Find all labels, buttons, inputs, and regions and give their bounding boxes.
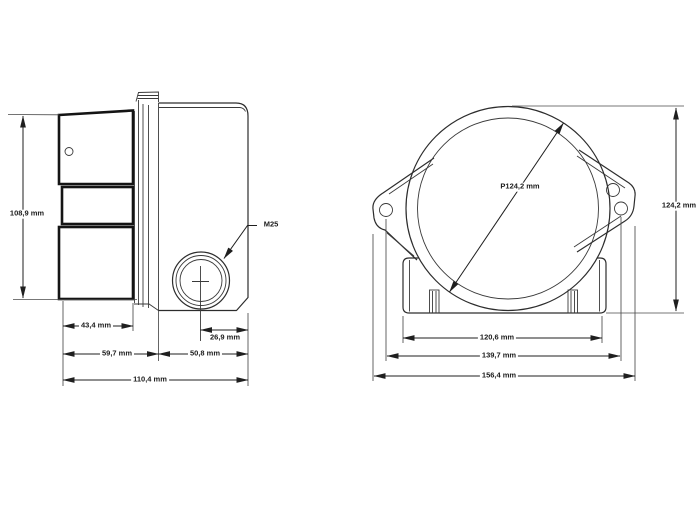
dim-body-depth-label: 50,8 mm [188,350,222,359]
dim-horn-depth-label: 43,4 mm [79,322,113,331]
drawing-canvas [0,0,700,518]
dim-side-height-label: 108,9 mm [8,210,46,219]
neck-bottom-step [134,304,159,311]
dim-mounting-hole-span-label: 139,7 mm [480,352,518,361]
dim-horn-section-depth-label: 59,7 mm [100,350,134,359]
dim-gland-offset-label: 26,9 mm [208,334,242,343]
mounting-hole-right-lower [615,202,628,215]
flange-inner-circle [418,118,599,299]
front-view-drawing [373,106,684,381]
dim-overall-depth-label: 110,4 mm [131,376,169,385]
mounting-ear-right [574,150,635,252]
dim-line-flange-diameter [450,123,564,292]
dim-flange-diameter-label: P124,2 mm [498,183,541,192]
rim-clamp-right [568,290,578,313]
cable-gland-label: M25 [262,221,281,230]
front-view-dimension-lines [374,108,676,376]
gland-leader-arrow [224,226,257,259]
horn-section-middle [62,187,133,224]
front-view-extension-lines [373,106,684,381]
horn-neck-flange [134,92,159,311]
mounting-hole-left [380,204,393,217]
dim-overall-height-label: 124,2 mm [660,202,698,211]
cable-gland [173,252,230,341]
top-tab [136,92,159,102]
body-lid-seam [159,108,246,112]
side-view-extension-lines [8,115,248,387]
flange-outer-circle [406,107,610,311]
horn-section-bottom [59,227,133,299]
dim-overall-width-label: 156,4 mm [480,372,518,381]
technical-drawing-page: 108,9 mm 43,4 mm 26,9 mm 59,7 mm 50,8 mm… [0,0,700,518]
dim-base-width-label: 120,6 mm [478,334,516,343]
horn-stack [59,111,133,300]
horn-mounting-hole [65,148,73,156]
rim-clamp-left [430,290,440,313]
